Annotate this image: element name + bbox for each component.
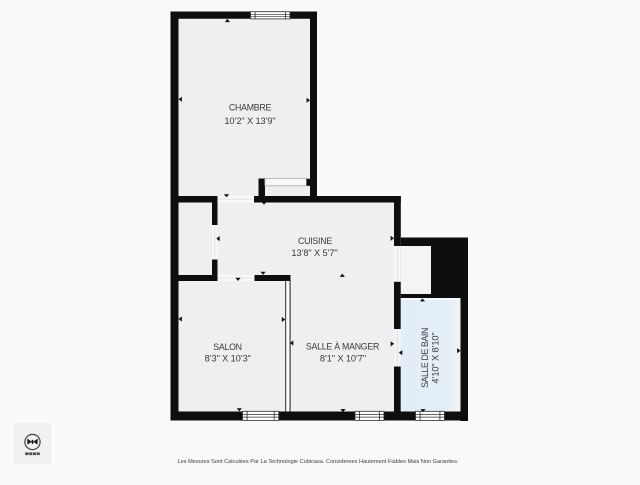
svg-text:SALLE DE BAIN: SALLE DE BAIN [420, 328, 430, 388]
svg-text:Les Mesures Sont Calculées Par: Les Mesures Sont Calculées Par La Techno… [178, 459, 459, 465]
svg-text:10’2" X 13’9": 10’2" X 13’9" [224, 116, 275, 126]
svg-text:CUISINE: CUISINE [298, 236, 332, 246]
svg-text:13’8" X 5’7": 13’8" X 5’7" [291, 248, 337, 258]
svg-text:8’3" X 10’3": 8’3" X 10’3" [205, 354, 251, 364]
svg-text:4’10" X 8’10": 4’10" X 8’10" [431, 332, 441, 383]
svg-text:8’1" X 10’7": 8’1" X 10’7" [320, 354, 366, 364]
svg-text:SALLE À MANGER: SALLE À MANGER [306, 342, 379, 352]
svg-text:SALON: SALON [213, 342, 242, 352]
svg-text:CHAMBRE: CHAMBRE [229, 103, 272, 113]
